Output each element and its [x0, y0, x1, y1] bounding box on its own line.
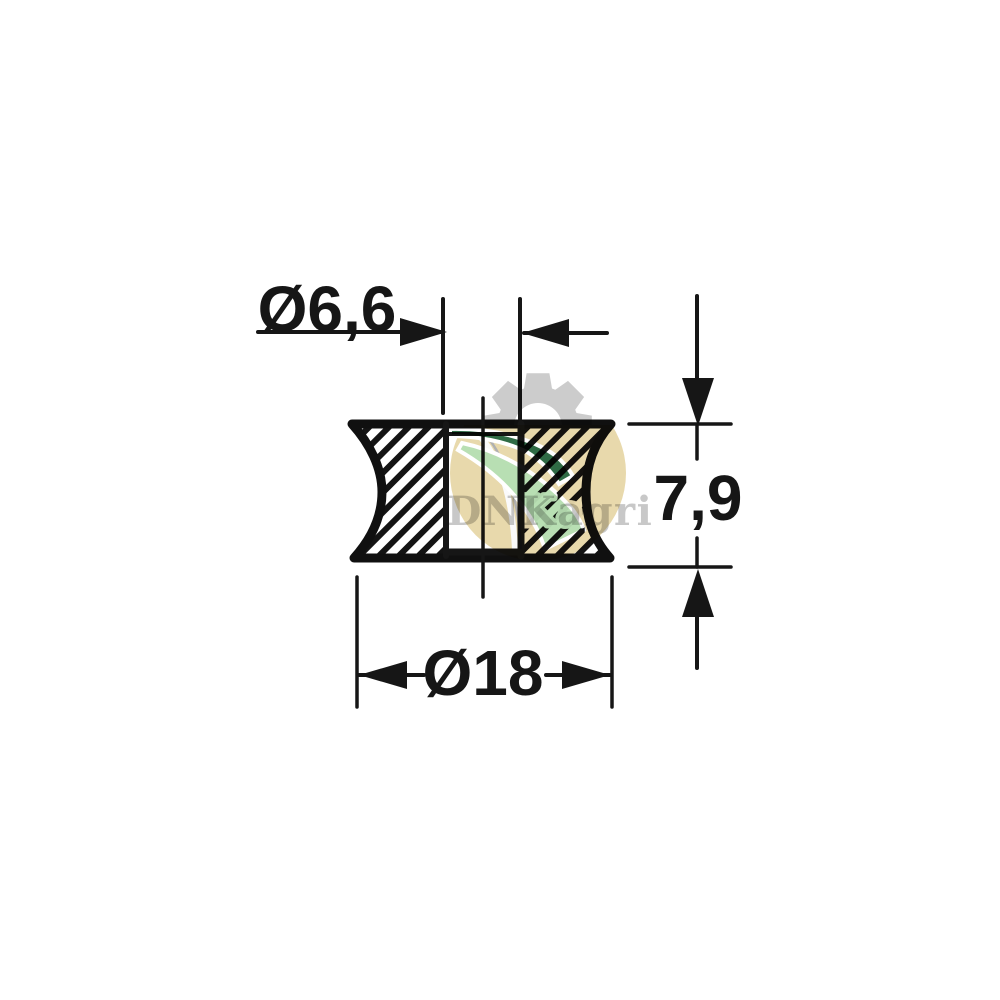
dim-label-bore: Ø6,6 — [258, 273, 397, 345]
arrowhead-bore-right-icon — [400, 318, 447, 346]
watermark-logo — [450, 373, 626, 561]
dim-label-height: 7,9 — [654, 462, 743, 534]
dim-label-outer: Ø18 — [423, 637, 544, 709]
arrowhead-height-down-icon — [682, 378, 714, 426]
arrowhead-outer-right-icon — [562, 661, 610, 689]
drawing-canvas: DNKagri Ø6,6 7,9 Ø18 — [0, 0, 1000, 1000]
arrowhead-outer-left-icon — [359, 661, 407, 689]
technical-drawing: DNKagri Ø6,6 7,9 Ø18 — [0, 0, 1000, 1000]
arrowhead-bore-left-icon — [522, 319, 569, 347]
arrowhead-height-up-icon — [682, 569, 714, 617]
